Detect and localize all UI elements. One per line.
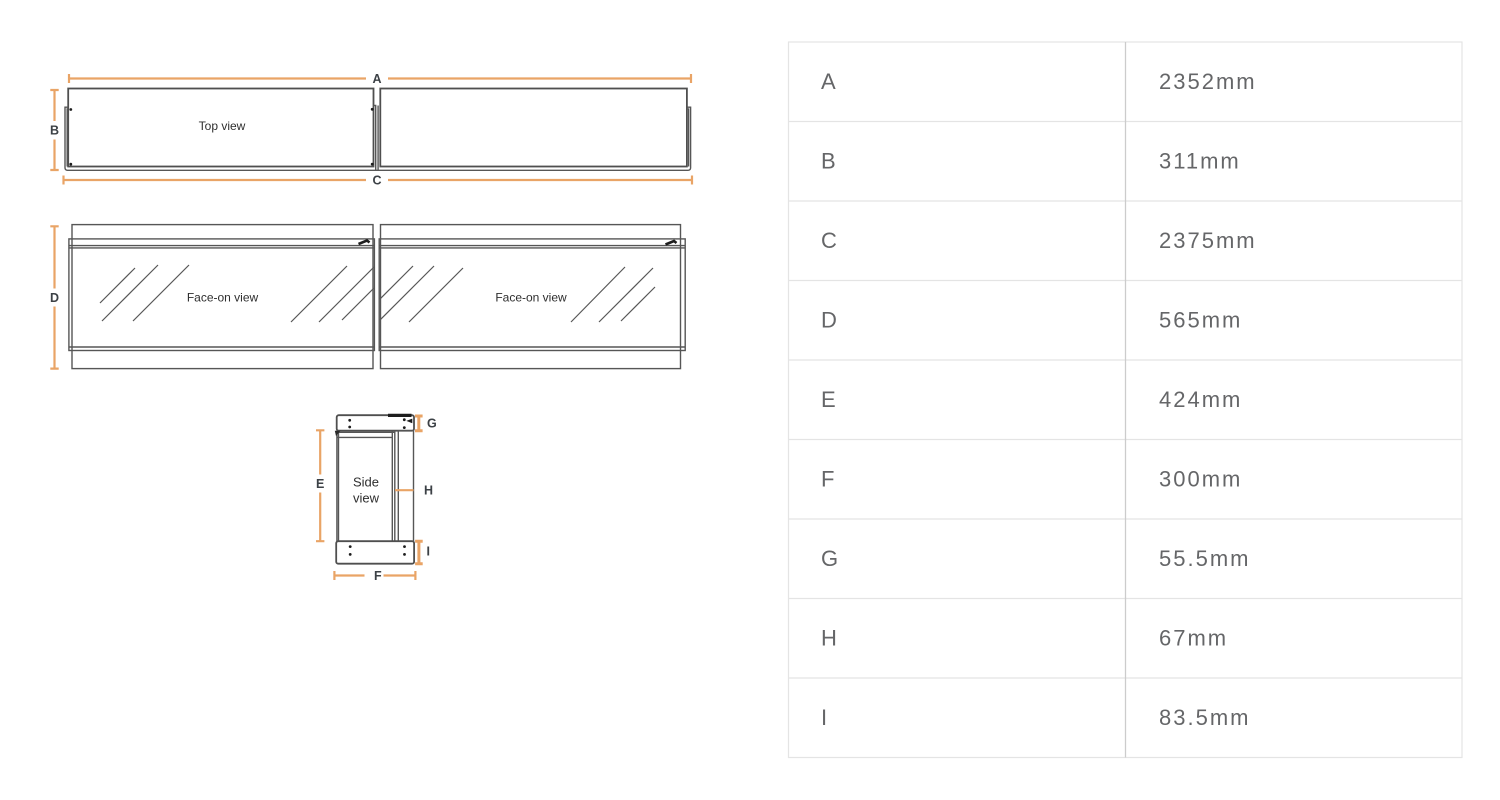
svg-text:Top view: Top view bbox=[199, 119, 246, 133]
svg-text:B: B bbox=[821, 149, 838, 174]
svg-text:H: H bbox=[821, 626, 839, 651]
svg-text:D: D bbox=[821, 308, 839, 333]
svg-text:C: C bbox=[372, 174, 381, 188]
svg-text:F: F bbox=[821, 467, 836, 492]
svg-text:G: G bbox=[821, 546, 840, 571]
svg-text:83.5mm: 83.5mm bbox=[1159, 705, 1250, 730]
svg-text:565mm: 565mm bbox=[1159, 308, 1242, 333]
svg-text:Face-on view: Face-on view bbox=[495, 291, 567, 305]
svg-text:A: A bbox=[372, 72, 381, 86]
svg-text:2352mm: 2352mm bbox=[1159, 69, 1257, 94]
svg-text:A: A bbox=[821, 69, 838, 94]
svg-text:300mm: 300mm bbox=[1159, 467, 1242, 492]
svg-text:B: B bbox=[50, 124, 59, 138]
svg-text:G: G bbox=[427, 417, 437, 431]
svg-text:55.5mm: 55.5mm bbox=[1159, 546, 1250, 571]
svg-text:Face-on view: Face-on view bbox=[187, 291, 259, 305]
svg-text:H: H bbox=[424, 484, 433, 498]
svg-text:C: C bbox=[821, 228, 839, 253]
svg-text:424mm: 424mm bbox=[1159, 387, 1242, 412]
svg-text:311mm: 311mm bbox=[1159, 149, 1241, 174]
svg-text:D: D bbox=[50, 291, 59, 305]
svg-text:Side: Side bbox=[353, 475, 379, 490]
svg-text:I: I bbox=[821, 705, 829, 730]
svg-text:F: F bbox=[374, 569, 382, 583]
svg-text:I: I bbox=[427, 545, 430, 559]
svg-text:E: E bbox=[316, 477, 324, 491]
svg-text:2375mm: 2375mm bbox=[1159, 228, 1257, 253]
svg-text:view: view bbox=[353, 490, 380, 505]
svg-text:E: E bbox=[821, 387, 838, 412]
svg-text:67mm: 67mm bbox=[1159, 626, 1228, 651]
